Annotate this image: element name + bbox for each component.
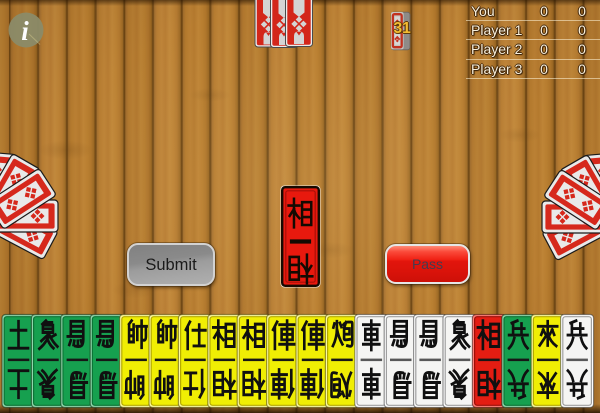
svg-text:i: i (21, 16, 29, 46)
